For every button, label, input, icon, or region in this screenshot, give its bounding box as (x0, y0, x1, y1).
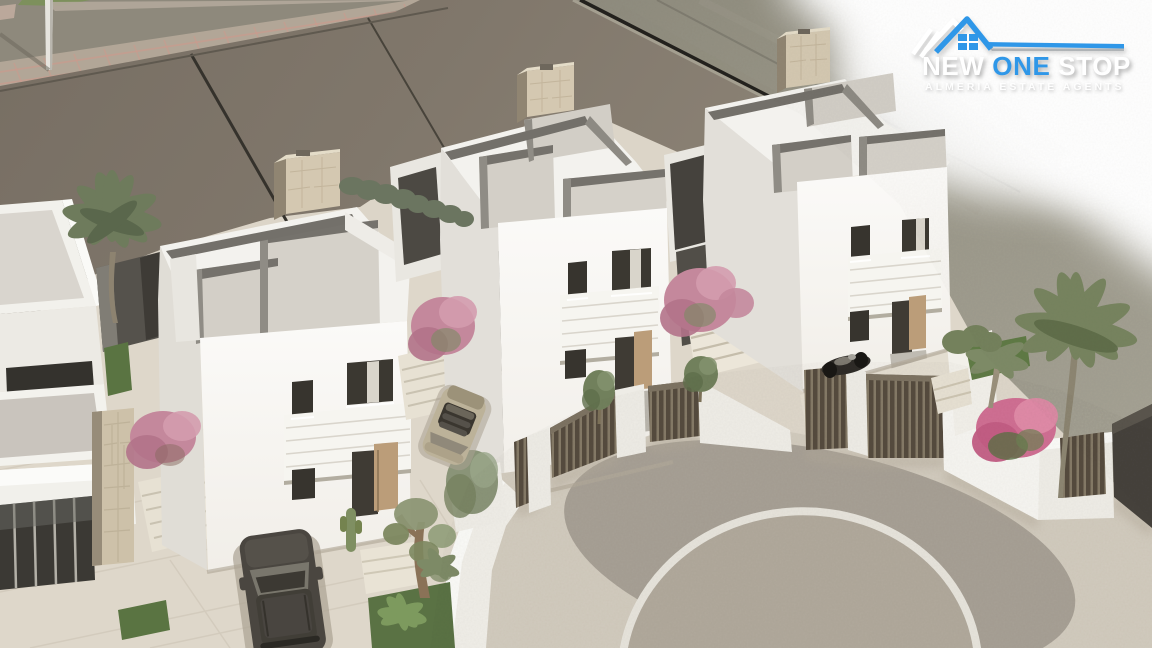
svg-text:ALMERIA ESTATE AGENTS: ALMERIA ESTATE AGENTS (925, 81, 1125, 93)
svg-text:NEW ONE STOP: NEW ONE STOP (922, 51, 1131, 81)
